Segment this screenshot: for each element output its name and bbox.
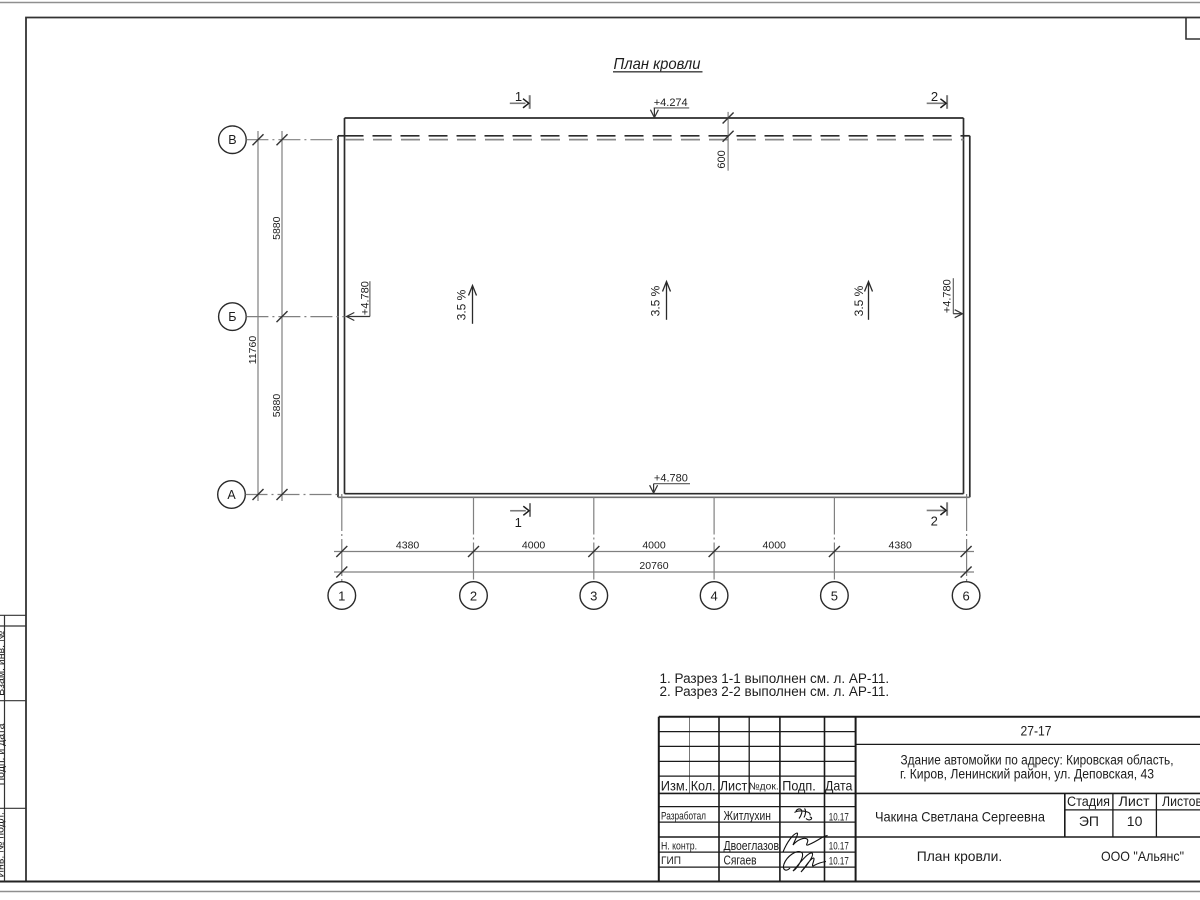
svg-text:+4.274: +4.274 — [654, 97, 688, 109]
svg-text:4380: 4380 — [889, 540, 913, 552]
svg-text:10.17: 10.17 — [829, 856, 849, 868]
svg-text:+4.780: +4.780 — [654, 473, 688, 485]
svg-text:3.5 %: 3.5 % — [852, 285, 866, 316]
svg-text:600: 600 — [716, 150, 728, 168]
svg-text:4000: 4000 — [642, 540, 666, 552]
svg-text:4380: 4380 — [396, 540, 420, 552]
svg-text:3: 3 — [590, 588, 597, 603]
svg-text:4000: 4000 — [763, 540, 787, 552]
svg-text:3.5 %: 3.5 % — [455, 289, 469, 320]
svg-text:г. Киров, Ленинский район, ул.: г. Киров, Ленинский район, ул. Деповская… — [900, 766, 1154, 781]
svg-text:5880: 5880 — [271, 394, 283, 418]
svg-text:1: 1 — [338, 588, 345, 603]
svg-text:6: 6 — [962, 588, 969, 603]
svg-text:3.5 %: 3.5 % — [649, 285, 663, 316]
svg-text:+4.780: +4.780 — [942, 279, 954, 313]
svg-text:А: А — [227, 488, 236, 502]
svg-text:1: 1 — [515, 89, 522, 104]
svg-text:2. Разрез 2-2 выполнен см. л.: 2. Разрез 2-2 выполнен см. л. АР-11. — [660, 684, 890, 699]
svg-text:Разработал: Разработал — [661, 811, 706, 823]
svg-text:20760: 20760 — [639, 560, 668, 572]
svg-text:Лист: Лист — [720, 777, 748, 793]
svg-text:ЭП: ЭП — [1079, 813, 1099, 829]
svg-text:2: 2 — [931, 89, 938, 104]
svg-text:10.17: 10.17 — [829, 841, 849, 853]
svg-text:Изм.: Изм. — [661, 777, 689, 793]
svg-text:№док.: №док. — [749, 781, 779, 792]
svg-text:5: 5 — [831, 588, 838, 603]
svg-text:11760: 11760 — [247, 336, 259, 365]
svg-text:Кол.: Кол. — [691, 777, 716, 793]
svg-text:10: 10 — [1127, 813, 1143, 829]
svg-text:1: 1 — [515, 515, 522, 530]
svg-text:Н. контр.: Н. контр. — [661, 840, 697, 852]
svg-text:ООО "Альянс": ООО "Альянс" — [1101, 848, 1184, 864]
svg-text:4: 4 — [710, 588, 717, 603]
svg-text:План кровли: План кровли — [614, 56, 701, 73]
svg-text:Чакина Светлана Сергеевна: Чакина Светлана Сергеевна — [875, 809, 1045, 825]
svg-text:Двоеглазов: Двоеглазов — [724, 838, 780, 853]
svg-text:Дата: Дата — [825, 777, 853, 793]
svg-text:10.17: 10.17 — [829, 811, 849, 823]
svg-text:ГИП: ГИП — [661, 855, 681, 867]
svg-text:Лист: Лист — [1119, 794, 1150, 809]
svg-text:Здание автомойки по адресу: Ки: Здание автомойки по адресу: Кировская об… — [901, 752, 1174, 767]
svg-text:Листов: Листов — [1162, 794, 1200, 809]
svg-text:5880: 5880 — [271, 216, 283, 240]
svg-text:Б: Б — [228, 310, 236, 324]
svg-text:Инв. № подл.: Инв. № подл. — [0, 812, 7, 877]
svg-text:Стадия: Стадия — [1067, 794, 1110, 809]
svg-text:Взам. инв. №: Взам. инв. № — [0, 631, 7, 696]
svg-text:В: В — [228, 133, 236, 147]
svg-text:2: 2 — [931, 514, 938, 529]
svg-text:Подп.: Подп. — [782, 777, 816, 793]
svg-text:2: 2 — [470, 588, 477, 603]
svg-text:Сягаев: Сягаев — [724, 852, 757, 867]
svg-text:Житлухин: Житлухин — [724, 808, 772, 823]
svg-text:4000: 4000 — [522, 540, 546, 552]
svg-text:27-17: 27-17 — [1021, 723, 1052, 739]
svg-text:План кровли.: План кровли. — [917, 848, 1003, 864]
svg-text:Подп. и дата: Подп. и дата — [0, 723, 7, 785]
